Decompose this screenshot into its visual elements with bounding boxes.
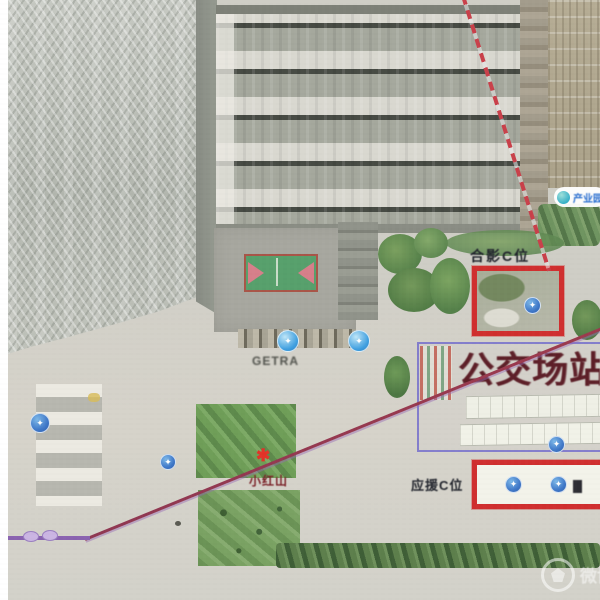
small-dark-glyph: [573, 480, 582, 493]
tree-canopy: [430, 258, 470, 314]
poi-pill: 产业园: [554, 187, 600, 207]
red-poi-label: 小红山: [249, 472, 288, 489]
plaza-label: GETRA: [252, 354, 299, 368]
tree-canopy: [384, 356, 410, 398]
building-left-column: [216, 14, 234, 226]
depot-title-text: 公交场站: [458, 348, 600, 394]
parking-stall-rows: [36, 384, 102, 506]
sports-court: [244, 254, 318, 292]
image-left-border: [0, 0, 8, 600]
poi-pill-label: 产业园: [573, 190, 600, 205]
location-marker: ✦: [505, 476, 522, 493]
watermark-camera-icon: [541, 558, 575, 592]
top-box-label: 合影C位: [470, 246, 530, 266]
location-marker: ✦: [348, 330, 370, 352]
top-right-building-roof: [548, 0, 600, 188]
lawn-upper: [196, 404, 296, 478]
location-marker: ✦: [524, 297, 541, 314]
poi-pill-icon: [557, 191, 570, 204]
bottom-box-label: 应援C位: [411, 475, 463, 494]
stair-tower: [338, 222, 378, 320]
location-marker: ✦: [550, 476, 567, 493]
bus-shed-row-2: [460, 422, 600, 447]
location-marker: ✦: [548, 436, 565, 453]
location-marker: ✦: [277, 330, 299, 352]
small-object: [175, 521, 181, 526]
highlight-box-bottom: [472, 460, 600, 509]
watermark-text: 微博: [580, 562, 600, 587]
corrugated-warehouse-roof: [8, 0, 196, 354]
highlight-box-top: [472, 266, 564, 336]
building-roof-edge: [216, 5, 520, 14]
ground-marking: [88, 393, 100, 402]
metro-line-marker: [23, 531, 39, 542]
location-marker: ✦: [160, 454, 176, 470]
metro-line-marker: [42, 530, 58, 541]
bus-shed-row-1: [466, 394, 600, 419]
location-marker: ✦: [30, 413, 50, 433]
court-center-line: [276, 258, 278, 286]
aerial-map-image: 公交场站 合影C位 应援C位 GETRA ✱ 小红山 产业园 ✦ ✦ ✦ ✦ ✦…: [0, 0, 600, 600]
tree-canopy: [414, 228, 448, 258]
